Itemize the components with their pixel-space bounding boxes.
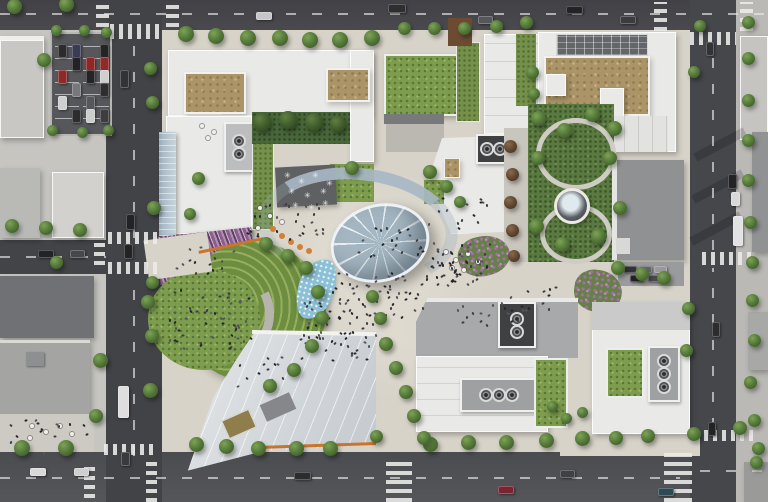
- tree: [504, 140, 517, 153]
- tree: [641, 429, 655, 443]
- tree: [146, 96, 159, 109]
- lane-marking: [700, 470, 768, 472]
- tree: [146, 276, 159, 289]
- crosswalk: [654, 2, 667, 31]
- tree: [607, 121, 622, 136]
- tree: [575, 431, 590, 446]
- tree: [103, 125, 114, 136]
- building-far-e-row: [752, 132, 768, 252]
- tree: [145, 329, 159, 343]
- tree: [289, 441, 304, 456]
- tree: [37, 53, 51, 67]
- pedestrian: [236, 385, 239, 388]
- tree: [499, 435, 514, 450]
- hvac-column-se: [648, 346, 680, 402]
- pedestrian: [315, 203, 318, 206]
- pedestrian: [454, 270, 456, 273]
- tree: [555, 237, 570, 252]
- tree: [251, 441, 266, 456]
- pedestrian: [177, 330, 180, 332]
- car: [566, 6, 583, 14]
- tree: [144, 62, 157, 75]
- building-se-east-gray-top: [592, 302, 690, 330]
- tree: [742, 16, 755, 29]
- tree: [374, 312, 387, 325]
- pedestrian: [257, 233, 259, 236]
- pedestrian: [364, 336, 367, 340]
- tree: [520, 16, 533, 29]
- tree: [506, 224, 519, 237]
- pedestrian: [388, 288, 391, 291]
- umbrella-table-mark: ✳: [304, 192, 311, 200]
- tree: [748, 414, 761, 427]
- tree: [557, 123, 572, 138]
- car: [100, 109, 109, 123]
- car: [731, 192, 740, 206]
- pedestrian: [462, 305, 464, 308]
- cafe-table: [44, 430, 48, 434]
- green-roof-strip-se-2: [606, 348, 644, 398]
- fan-icon: [482, 144, 492, 154]
- car: [72, 109, 81, 123]
- pedestrian: [386, 290, 389, 294]
- cafe-table: [444, 250, 448, 254]
- tree: [742, 52, 755, 65]
- car: [86, 70, 95, 84]
- pedestrian: [520, 305, 523, 307]
- car: [256, 12, 272, 20]
- car: [58, 70, 67, 84]
- rooftop-box: [26, 352, 44, 366]
- car: [620, 16, 636, 24]
- car: [72, 57, 81, 71]
- tree: [490, 20, 503, 33]
- tree: [694, 20, 706, 32]
- lane-marking: [712, 48, 714, 250]
- tree: [287, 363, 301, 377]
- lane-marking: [133, 276, 135, 456]
- fan-icon: [234, 136, 244, 146]
- cafe-table: [30, 424, 34, 428]
- tree: [59, 0, 74, 12]
- tree: [744, 216, 757, 229]
- car: [733, 216, 743, 246]
- pedestrian: [228, 296, 230, 299]
- car: [712, 322, 720, 337]
- pedestrian: [554, 286, 557, 288]
- car: [30, 468, 46, 476]
- car: [86, 96, 95, 110]
- tree: [680, 344, 693, 357]
- pedestrian: [243, 340, 245, 343]
- pedestrian: [479, 202, 482, 204]
- fan-icon: [494, 390, 504, 400]
- umbrella-table-mark: ✳: [284, 172, 291, 180]
- lane-marking: [712, 268, 714, 428]
- umbrella-table-mark: ✳: [292, 202, 299, 210]
- tree: [364, 30, 380, 46]
- orange-umbrella: [297, 244, 303, 250]
- tree: [73, 223, 87, 237]
- pedestrian: [486, 204, 488, 207]
- umbrella-table-mark: ✳: [288, 188, 295, 196]
- pedestrian: [175, 267, 178, 270]
- gray-band: [384, 114, 444, 124]
- pedestrian: [245, 320, 247, 323]
- cafe-table: [206, 136, 210, 140]
- tree: [687, 427, 701, 441]
- tree: [746, 294, 759, 307]
- green-roof-tan-2: [326, 68, 370, 102]
- pedestrian: [182, 334, 185, 336]
- tree: [529, 219, 544, 234]
- pedestrian: [441, 253, 444, 256]
- rooftop-box-gray: [616, 238, 630, 254]
- tree: [454, 196, 466, 208]
- tree: [302, 32, 318, 48]
- tree: [744, 376, 757, 389]
- skylight-grid: [556, 34, 648, 56]
- pedestrian: [322, 337, 325, 340]
- tree: [531, 151, 545, 165]
- pedestrian: [470, 265, 472, 268]
- tree: [311, 285, 325, 299]
- building-se-gray-slab: [416, 298, 578, 358]
- tree: [603, 151, 617, 165]
- pedestrian: [37, 422, 40, 424]
- tree: [528, 88, 540, 100]
- pedestrian: [385, 227, 388, 230]
- pedestrian: [58, 425, 60, 428]
- tree: [547, 401, 558, 412]
- car: [126, 214, 135, 230]
- tree: [39, 221, 53, 235]
- building-gray-bottomleft: [0, 340, 90, 414]
- tree: [742, 134, 755, 147]
- car: [560, 470, 575, 478]
- tree: [50, 256, 63, 269]
- small-courtyard: [386, 124, 444, 152]
- tree: [89, 409, 103, 423]
- car: [658, 488, 674, 496]
- pedestrian: [390, 306, 392, 309]
- umbrella-table-mark: ✳: [308, 204, 315, 212]
- tree: [219, 439, 234, 454]
- tree: [506, 168, 519, 181]
- pedestrian: [442, 264, 444, 267]
- building-northwest-wing: [350, 50, 374, 162]
- lane-marking: [0, 477, 680, 479]
- green-roof-tan-1: [184, 72, 246, 114]
- car: [70, 250, 85, 258]
- tree: [609, 431, 623, 445]
- car: [100, 57, 109, 71]
- pedestrian: [397, 292, 399, 295]
- tan-patch-wedge: [444, 158, 460, 178]
- cafe-table: [70, 432, 74, 436]
- car: [294, 472, 311, 480]
- pedestrian: [374, 334, 377, 338]
- car: [86, 57, 95, 71]
- tree: [189, 437, 204, 452]
- fan-icon: [507, 390, 517, 400]
- pedestrian: [337, 272, 340, 274]
- pedestrian: [301, 232, 305, 235]
- rooftop-box-white-1: [546, 74, 566, 96]
- tree: [147, 201, 161, 215]
- crosswalk: [146, 462, 157, 502]
- tree: [281, 249, 295, 263]
- tree: [272, 30, 288, 46]
- umbrella-table-mark: ✳: [322, 200, 329, 208]
- pedestrian: [391, 239, 393, 242]
- umbrella-table-mark: ✳: [320, 188, 327, 196]
- cafe-table: [212, 130, 216, 134]
- car: [86, 109, 95, 123]
- tree: [461, 435, 476, 450]
- tree: [305, 339, 319, 353]
- pedestrian: [460, 255, 463, 258]
- pedestrian: [372, 254, 375, 257]
- fan-icon: [512, 327, 522, 337]
- tree: [752, 442, 765, 455]
- tree: [58, 440, 74, 456]
- tree: [398, 22, 411, 35]
- tree: [279, 111, 297, 129]
- tree: [259, 237, 273, 251]
- tree: [47, 125, 58, 136]
- tree: [399, 385, 413, 399]
- cafe-table: [454, 258, 458, 262]
- car: [706, 42, 714, 56]
- tree: [531, 111, 546, 126]
- tree: [585, 107, 600, 122]
- fan-icon: [234, 149, 244, 159]
- tree: [330, 116, 346, 132]
- pedestrian: [184, 317, 188, 320]
- tree: [591, 229, 606, 244]
- pedestrian: [264, 205, 268, 208]
- pedestrian: [436, 248, 439, 251]
- car: [72, 44, 81, 58]
- pedestrian: [492, 304, 494, 307]
- pedestrian: [276, 216, 278, 219]
- tree: [299, 261, 313, 275]
- crosswalk: [108, 232, 162, 244]
- pedestrian: [300, 356, 304, 359]
- car: [100, 83, 109, 97]
- pedestrian: [303, 334, 305, 337]
- cafe-table: [258, 206, 262, 210]
- tree: [178, 26, 194, 42]
- tree: [370, 430, 383, 443]
- tree: [423, 165, 437, 179]
- tree: [253, 113, 271, 131]
- umbrella-table-mark: ✳: [326, 180, 333, 188]
- tree: [561, 413, 572, 424]
- tree: [440, 180, 453, 193]
- lane-marking: [0, 13, 766, 15]
- pedestrian: [188, 307, 191, 311]
- car: [118, 386, 129, 418]
- tree: [733, 421, 747, 435]
- pedestrian: [395, 296, 398, 299]
- tree: [7, 0, 22, 14]
- car: [120, 70, 129, 88]
- tree: [5, 219, 19, 233]
- tree: [742, 174, 755, 187]
- car: [74, 468, 89, 476]
- pedestrian: [461, 244, 464, 247]
- crosswalk: [94, 241, 105, 265]
- tree: [539, 433, 554, 448]
- fan-icon: [659, 382, 669, 392]
- car: [58, 96, 67, 110]
- hvac-unit-west: [224, 122, 254, 172]
- tree: [611, 261, 625, 275]
- umbrella-table-mark: ✳: [298, 178, 305, 186]
- pedestrian: [196, 310, 199, 312]
- tree: [101, 27, 112, 38]
- car: [72, 83, 81, 97]
- pedestrian: [379, 290, 382, 292]
- tree: [428, 22, 441, 35]
- green-roof-strip-north: [456, 42, 480, 122]
- car: [708, 422, 716, 436]
- orange-umbrella: [279, 233, 285, 239]
- tree: [305, 113, 323, 131]
- car: [58, 44, 67, 58]
- building-green-roof: [384, 54, 462, 116]
- car: [498, 486, 514, 494]
- tree: [748, 334, 761, 347]
- tree: [389, 361, 403, 375]
- tree: [366, 290, 379, 303]
- pedestrian: [214, 312, 216, 315]
- tree: [263, 379, 277, 393]
- tree: [51, 25, 62, 36]
- tree: [750, 456, 763, 469]
- cafe-table: [268, 214, 272, 218]
- pedestrian: [442, 197, 445, 199]
- glass-canopy-west: [159, 132, 176, 236]
- pedestrian: [352, 287, 355, 289]
- fountain: [554, 188, 590, 224]
- tree: [240, 30, 256, 46]
- crosswalk: [110, 24, 162, 39]
- pedestrian: [331, 359, 334, 361]
- tree: [417, 431, 431, 445]
- pedestrian: [465, 316, 468, 320]
- tree: [184, 208, 196, 220]
- lane-marking: [133, 32, 135, 238]
- tree: [332, 32, 348, 48]
- car: [388, 4, 406, 13]
- tree: [613, 201, 627, 215]
- umbrella-table-mark: ✳: [312, 172, 319, 180]
- tree: [746, 256, 759, 269]
- tree: [379, 337, 393, 351]
- tree: [407, 409, 421, 423]
- pedestrian: [182, 347, 186, 350]
- car: [124, 244, 133, 259]
- aerial-rendering: ✳✳✳✳✳✳✳✳✳✳: [0, 0, 768, 502]
- tree: [323, 441, 338, 456]
- car: [100, 44, 109, 58]
- fan-icon: [659, 356, 669, 366]
- tree: [345, 161, 359, 175]
- tree: [315, 311, 329, 325]
- car: [728, 174, 737, 189]
- tree: [577, 407, 588, 418]
- pedestrian: [479, 312, 482, 314]
- tree: [688, 66, 700, 78]
- cafe-table: [462, 268, 466, 272]
- pedestrian: [319, 305, 322, 308]
- tree: [682, 302, 695, 315]
- tree: [14, 440, 30, 456]
- tree: [208, 28, 224, 44]
- pedestrian: [366, 322, 368, 325]
- building-far-ne: [740, 36, 768, 140]
- tree: [504, 196, 517, 209]
- pedestrian: [394, 277, 397, 280]
- cafe-table: [28, 436, 32, 440]
- tree: [192, 172, 205, 185]
- hvac-row-se: [460, 378, 538, 412]
- tree: [77, 127, 88, 138]
- tree: [657, 271, 671, 285]
- tree: [635, 267, 649, 281]
- building-west-edge-north: [0, 36, 44, 138]
- pedestrian: [320, 331, 323, 334]
- car: [100, 70, 109, 84]
- pedestrian: [357, 251, 360, 253]
- pedestrian: [427, 223, 430, 226]
- building-dark-midleft: [0, 276, 94, 338]
- tree: [508, 250, 520, 262]
- tree: [143, 383, 158, 398]
- cafe-table: [256, 226, 260, 230]
- fan-icon: [659, 369, 669, 379]
- tree: [458, 22, 471, 35]
- orange-umbrella: [306, 248, 312, 254]
- car: [121, 452, 130, 466]
- fan-icon: [481, 390, 491, 400]
- pedestrian: [332, 291, 334, 294]
- tree: [93, 353, 108, 368]
- tree: [742, 94, 755, 107]
- pedestrian: [180, 289, 182, 292]
- cafe-table: [200, 124, 204, 128]
- tree: [141, 295, 155, 309]
- pedestrian: [42, 451, 45, 455]
- crosswalk: [108, 262, 162, 274]
- tree: [79, 25, 90, 36]
- tree: [526, 66, 539, 79]
- pedestrian: [421, 307, 424, 310]
- cafe-table: [280, 220, 284, 224]
- crosswalk: [386, 458, 412, 502]
- pedestrian: [299, 338, 302, 341]
- pedestrian: [174, 311, 177, 313]
- pedestrian: [329, 310, 332, 312]
